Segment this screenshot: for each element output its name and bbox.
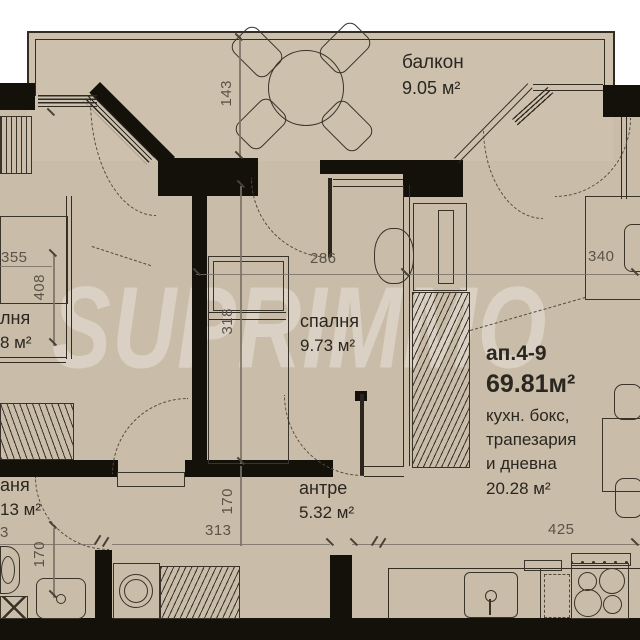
dimension-line [0, 266, 52, 267]
counter-divider [540, 568, 541, 618]
bathroom-area-fragment: 13 м² [0, 500, 41, 520]
dim-425: 425 [548, 521, 575, 538]
burner [574, 589, 602, 617]
faucet [485, 590, 497, 602]
wall-segment [403, 160, 463, 197]
wall-segment [0, 83, 35, 110]
bedroom-right-wall [403, 185, 410, 466]
bedroom-name: спалня [300, 311, 359, 332]
dimension-line [196, 274, 640, 275]
room-label-bathroom: аня 13 м² [0, 475, 41, 520]
left-room-area-fragment: 8 м² [0, 333, 32, 353]
balcony-name: балкон [402, 52, 464, 74]
apartment-info: ап.4-9 69.81м² кухн. бокс, трапезария и … [486, 342, 576, 499]
wall-segment [364, 466, 404, 477]
dimension-line [240, 186, 242, 464]
dim-355: 355 [1, 249, 28, 266]
floor-plan: SUPRIMMO [0, 0, 640, 640]
wall-segment [533, 84, 603, 91]
wardrobe [0, 116, 32, 174]
kitchen-label-line1: кухн. бокс, [486, 406, 576, 426]
dim-318: 318 [219, 308, 236, 335]
bathroom-name-fragment: аня [0, 475, 41, 496]
washing-machine-drum-inner [124, 579, 148, 603]
dishwasher [544, 574, 570, 618]
dim-143: 143 [218, 80, 235, 107]
wall-segment [0, 618, 640, 640]
chair [614, 384, 640, 420]
chair [624, 224, 640, 272]
chair [615, 478, 640, 518]
wardrobe [412, 292, 470, 468]
dim-3-fragment: 3 [0, 524, 9, 541]
toilet-bowl [1, 556, 15, 584]
wall-segment [158, 158, 258, 196]
dim-340: 340 [588, 248, 615, 265]
dim-408: 408 [31, 274, 48, 301]
dimension-line [112, 544, 330, 545]
dimension-line [352, 544, 640, 545]
wardrobe [0, 403, 74, 460]
wardrobe [160, 566, 240, 619]
bedroom-top-wall [333, 179, 403, 187]
dimension-line [239, 36, 241, 158]
stove-control-panel [571, 553, 631, 566]
wall-segment [320, 160, 405, 174]
room-label-bedroom: спалня 9.73 м² [300, 311, 359, 356]
cutting-board [524, 560, 562, 571]
outside-top-left [0, 31, 27, 83]
kitchen-label-line3: и дневна [486, 454, 576, 474]
door-leaf [117, 472, 185, 487]
outside-top-right [613, 31, 640, 85]
balcony-area: 9.05 м² [402, 78, 464, 99]
burner [599, 568, 625, 594]
wall-segment [330, 555, 352, 620]
dim-170a: 170 [219, 488, 236, 515]
dim-313: 313 [205, 522, 232, 539]
kitchen-label-line2: трапезария [486, 430, 576, 450]
dim-286: 286 [310, 250, 337, 267]
wall-segment [0, 357, 66, 363]
left-room-name-fragment: лня [0, 308, 32, 329]
room-label-left-room: лня 8 м² [0, 308, 32, 353]
dim-170b: 170 [31, 541, 48, 568]
dimension-line [53, 254, 55, 346]
kitchen-area: 20.28 м² [486, 479, 576, 499]
desk-monitor [438, 210, 454, 284]
dimension-line [53, 528, 55, 598]
outside-top [0, 0, 640, 31]
dimension-line [240, 466, 242, 546]
room-label-hallway: антре 5.32 м² [299, 478, 354, 523]
bathroom-cabinet [0, 596, 28, 619]
burner [603, 595, 622, 614]
room-label-balcony: балкон 9.05 м² [402, 52, 464, 99]
shower-drain [56, 594, 66, 604]
wall-segment [192, 196, 207, 462]
hallway-name: антре [299, 478, 354, 499]
bed-pillow [213, 261, 284, 311]
faucet-stem [489, 599, 491, 615]
wall-segment [603, 85, 640, 117]
wall-segment [95, 550, 112, 620]
hallway-area: 5.32 м² [299, 503, 354, 523]
apartment-id: ап.4-9 [486, 342, 576, 366]
bedroom-area: 9.73 м² [300, 336, 359, 356]
apartment-area: 69.81м² [486, 370, 576, 399]
